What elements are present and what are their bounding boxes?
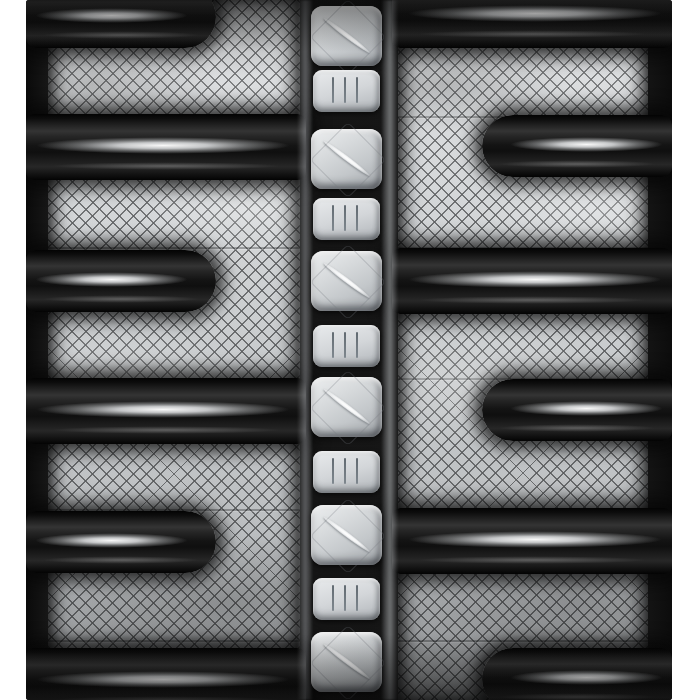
- lug-gloss-highlight-secondary: [412, 30, 653, 38]
- product-photo-rubber-track: [0, 0, 700, 700]
- drive-lug-block-small: [313, 578, 380, 620]
- lug-gloss-highlight: [34, 401, 292, 418]
- lug-gloss-highlight: [34, 272, 190, 288]
- lug-gloss-highlight-secondary: [495, 160, 658, 167]
- tread-lug-left-long: [26, 648, 306, 700]
- mold-tick-mark: [332, 458, 334, 484]
- lug-gloss-highlight: [34, 533, 190, 549]
- tread-lug-left-short: [26, 511, 216, 573]
- mold-tick-mark: [356, 332, 358, 358]
- tread-lug-right-long: [392, 0, 672, 48]
- lug-gloss-highlight-secondary: [46, 426, 287, 434]
- mold-tick-mark: [332, 332, 334, 358]
- lug-gloss-highlight: [509, 670, 665, 686]
- mold-tick-mark: [344, 458, 346, 484]
- lug-gloss-highlight: [406, 5, 664, 22]
- mold-tick-mark: [356, 458, 358, 484]
- lug-gloss-highlight: [509, 401, 665, 417]
- mold-tick-mark: [344, 585, 346, 611]
- channel-wall-highlight-right: [382, 0, 398, 700]
- drive-lug-block-large: [311, 6, 382, 66]
- lug-gloss-highlight-secondary: [412, 296, 653, 304]
- lug-gloss-highlight: [406, 271, 664, 288]
- drive-lug-block-large: [311, 632, 382, 692]
- lug-gloss-highlight: [509, 137, 665, 153]
- tread-lug-right-short: [482, 115, 672, 177]
- left-tread-base-texture: [48, 0, 300, 700]
- tread-lug-left-long: [26, 378, 306, 444]
- drive-lug-block-large: [311, 377, 382, 437]
- drive-lug-block-small: [313, 198, 380, 240]
- lug-gloss-highlight: [406, 531, 664, 548]
- rubber-track-body: [26, 0, 672, 700]
- mold-tick-mark: [356, 585, 358, 611]
- lug-gloss-highlight-secondary: [412, 556, 653, 564]
- tread-lug-right-long: [392, 508, 672, 574]
- mold-tick-mark: [332, 205, 334, 231]
- drive-lug-block-large: [311, 251, 382, 311]
- drive-lug-block-small: [313, 451, 380, 493]
- mold-tick-mark: [356, 77, 358, 103]
- mold-tick-mark: [344, 332, 346, 358]
- lug-gloss-highlight-secondary: [39, 295, 202, 302]
- right-tread-base-texture: [398, 0, 648, 700]
- lug-gloss-highlight: [34, 671, 292, 688]
- drive-lug-block-large: [311, 129, 382, 189]
- mold-tick-mark: [356, 205, 358, 231]
- lug-gloss-highlight: [34, 137, 292, 154]
- tread-lug-left-short: [26, 0, 216, 48]
- tread-lug-left-short: [26, 250, 216, 312]
- mold-tick-mark: [344, 205, 346, 231]
- mold-tick-mark: [344, 77, 346, 103]
- lug-gloss-highlight-secondary: [39, 556, 202, 563]
- lug-gloss-highlight-secondary: [46, 162, 287, 170]
- tread-lug-right-short: [482, 648, 672, 700]
- lug-gloss-highlight-secondary: [495, 424, 658, 431]
- drive-lug-block-small: [313, 70, 380, 112]
- drive-lug-block-large: [311, 505, 382, 565]
- mold-tick-mark: [332, 77, 334, 103]
- lug-gloss-highlight: [34, 8, 190, 24]
- tread-lug-right-long: [392, 248, 672, 314]
- drive-lug-block-small: [313, 325, 380, 367]
- lug-gloss-highlight-secondary: [495, 693, 658, 700]
- mold-tick-mark: [332, 585, 334, 611]
- channel-wall-highlight-left: [297, 0, 312, 700]
- tread-lug-left-long: [26, 114, 306, 180]
- lug-gloss-highlight-secondary: [46, 696, 287, 700]
- lug-gloss-highlight-secondary: [39, 31, 202, 38]
- tread-lug-right-short: [482, 379, 672, 441]
